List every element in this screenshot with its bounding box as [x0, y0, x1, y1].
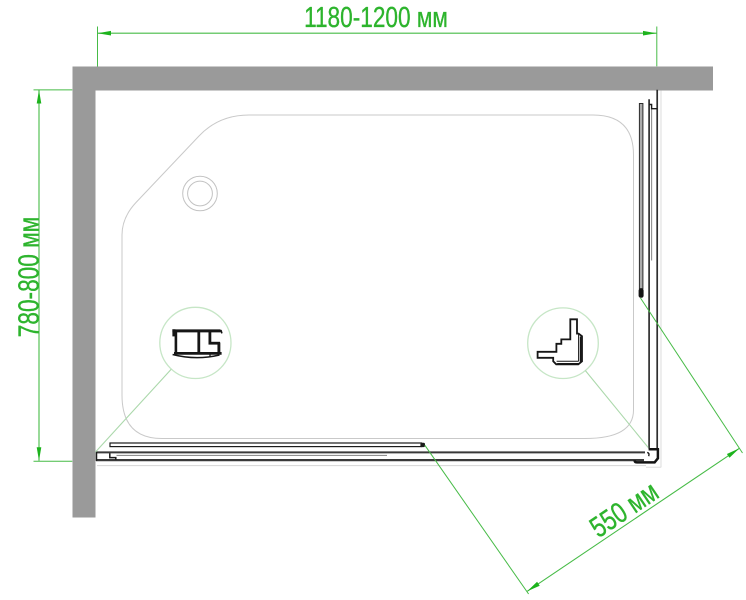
svg-text:1180-1200 мм: 1180-1200 мм [304, 0, 448, 33]
svg-text:780-800 мм: 780-800 мм [12, 217, 45, 337]
svg-text:550 мм: 550 мм [583, 474, 664, 544]
